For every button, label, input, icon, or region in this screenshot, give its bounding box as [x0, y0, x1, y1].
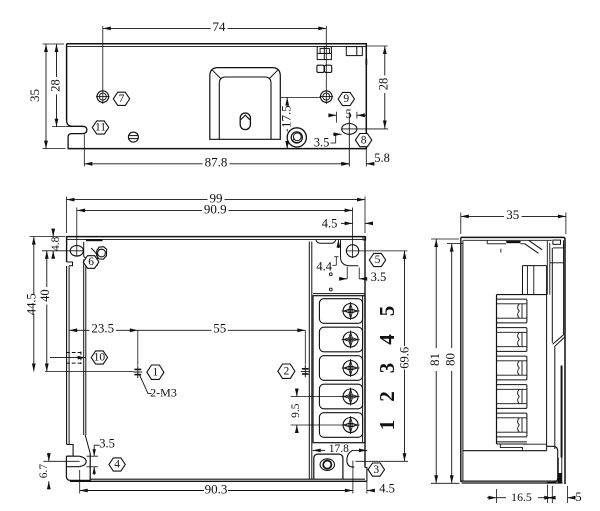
svg-text:1: 1 — [375, 420, 399, 431]
svg-text:3.5: 3.5 — [371, 270, 387, 284]
svg-text:35: 35 — [27, 89, 42, 102]
svg-text:4.5: 4.5 — [322, 216, 338, 230]
svg-text:3.5: 3.5 — [99, 437, 115, 451]
svg-text:6.7: 6.7 — [38, 464, 50, 479]
svg-text:55: 55 — [213, 321, 226, 336]
svg-text:8: 8 — [361, 134, 367, 146]
svg-text:28: 28 — [377, 78, 391, 91]
svg-text:5: 5 — [375, 306, 399, 317]
svg-text:23.5: 23.5 — [91, 321, 114, 336]
svg-text:17.8: 17.8 — [329, 443, 349, 455]
svg-text:10: 10 — [94, 352, 106, 364]
svg-text:90.3: 90.3 — [205, 481, 228, 496]
svg-text:4.8: 4.8 — [50, 236, 62, 251]
svg-text:3: 3 — [373, 464, 379, 476]
svg-text:9.5: 9.5 — [290, 403, 302, 418]
svg-text:28: 28 — [48, 79, 62, 92]
svg-text:74: 74 — [213, 19, 227, 34]
svg-text:69.6: 69.6 — [397, 347, 411, 369]
svg-text:2: 2 — [375, 391, 399, 402]
svg-text:9: 9 — [343, 93, 349, 105]
svg-text:4.5: 4.5 — [379, 482, 395, 496]
svg-text:1: 1 — [153, 366, 159, 378]
svg-text:90.9: 90.9 — [204, 201, 227, 216]
svg-text:3: 3 — [375, 363, 399, 374]
svg-text:6: 6 — [88, 256, 94, 268]
svg-text:16.5: 16.5 — [511, 490, 532, 504]
svg-text:4: 4 — [114, 459, 120, 471]
svg-text:7: 7 — [119, 93, 125, 105]
svg-text:2: 2 — [284, 365, 290, 377]
svg-text:5: 5 — [575, 490, 581, 504]
svg-text:80: 80 — [442, 353, 457, 366]
svg-text:4.4: 4.4 — [316, 259, 332, 273]
svg-text:35: 35 — [506, 207, 519, 222]
svg-text:81: 81 — [427, 353, 442, 366]
svg-text:11: 11 — [95, 122, 106, 134]
svg-text:2-M3: 2-M3 — [150, 386, 177, 400]
svg-text:87.8: 87.8 — [205, 155, 228, 170]
svg-text:3.5: 3.5 — [314, 136, 330, 150]
svg-text:40: 40 — [38, 289, 52, 302]
svg-text:44.5: 44.5 — [25, 293, 39, 315]
svg-text:5.8: 5.8 — [374, 151, 390, 165]
svg-text:5: 5 — [375, 254, 381, 266]
svg-text:5: 5 — [345, 107, 351, 121]
svg-text:17.5: 17.5 — [279, 105, 294, 128]
svg-text:4: 4 — [375, 334, 399, 345]
